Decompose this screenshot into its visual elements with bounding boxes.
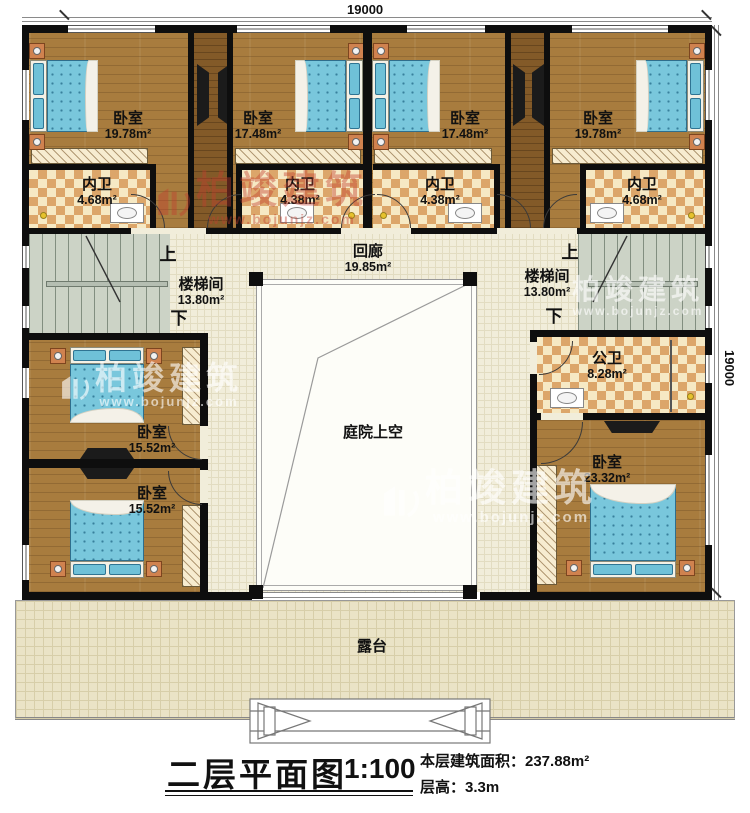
room-label-corridor: 回廊19.85m² bbox=[345, 243, 392, 275]
room-label-ensuite-2: 内卫4.38m² bbox=[280, 176, 320, 208]
room-label-stair-left: 楼梯间13.80m² bbox=[178, 276, 225, 308]
floor-height-note: 层高：3.3m bbox=[420, 776, 499, 797]
dimension-right-line-2 bbox=[718, 25, 719, 600]
drawing-title: 二层平面图 bbox=[167, 748, 347, 796]
room-label-ensuite-1: 内卫4.68m² bbox=[77, 176, 117, 208]
column-court-tr bbox=[463, 272, 477, 286]
column-court-bl bbox=[249, 585, 263, 599]
floor-plan: 卧室19.78m² 卧室17.48m² 卧室17.48m² 卧室19.78m² … bbox=[0, 0, 750, 813]
stair-right-up-label: 上 bbox=[562, 238, 579, 263]
window-left-5 bbox=[22, 545, 29, 580]
window-top-3 bbox=[407, 25, 485, 33]
room-label-bedroom-br: 卧室23.32m² bbox=[584, 454, 631, 486]
dimension-top-line-1 bbox=[22, 17, 712, 18]
wall-r1-d1 bbox=[188, 33, 194, 228]
title-underline-thin bbox=[165, 795, 413, 796]
floor-area-note: 本层建筑面积：237.88m² bbox=[420, 750, 589, 771]
wall-bath4-side bbox=[580, 164, 586, 228]
stair-left-up-label: 上 bbox=[160, 240, 177, 265]
wall-bottom-right bbox=[480, 592, 712, 600]
wall-d2-r4 bbox=[544, 33, 550, 228]
door-gap-entry1 bbox=[131, 228, 206, 234]
room-label-bedroom-tl: 卧室19.78m² bbox=[105, 110, 152, 142]
door-gap-br bbox=[541, 413, 583, 420]
column-court-br bbox=[463, 585, 477, 599]
window-top-2 bbox=[237, 25, 330, 33]
room-label-courtyard: 庭院上空 bbox=[343, 424, 403, 441]
dimension-top: 19000 bbox=[347, 2, 383, 17]
wall-bottom-left bbox=[22, 592, 252, 600]
room-label-ensuite-3: 内卫4.38m² bbox=[420, 176, 460, 208]
window-right-5 bbox=[705, 455, 712, 545]
door-gap-center bbox=[341, 228, 411, 234]
wall-bath1-top bbox=[29, 164, 150, 170]
wall-bath3-top bbox=[373, 164, 494, 170]
window-left-2 bbox=[22, 246, 29, 268]
door-gap-pb bbox=[530, 342, 537, 374]
window-left-4 bbox=[22, 368, 29, 398]
room-label-bedroom-tmr: 卧室17.48m² bbox=[442, 110, 489, 142]
window-top-4 bbox=[572, 25, 668, 33]
room-label-public-bath: 公卫8.28m² bbox=[587, 350, 627, 382]
window-right-3 bbox=[705, 306, 712, 328]
dimension-right-line-1 bbox=[714, 25, 715, 600]
window-right-2 bbox=[705, 246, 712, 268]
room-label-ensuite-4: 内卫4.68m² bbox=[622, 176, 662, 208]
wall-stairL-bottom bbox=[22, 333, 208, 340]
dimension-right: 19000 bbox=[722, 350, 737, 386]
room-label-bedroom-ml: 卧室15.52m² bbox=[129, 424, 176, 456]
door-gap-entry2 bbox=[497, 228, 577, 234]
room-label-terrace: 露台 bbox=[357, 638, 387, 655]
stair-left-down-label: 下 bbox=[171, 304, 188, 329]
window-top-1 bbox=[68, 25, 155, 33]
stair-right-down-label: 下 bbox=[546, 302, 563, 327]
wall-bath4-top bbox=[586, 164, 705, 170]
drawing-scale: 1:100 bbox=[344, 753, 416, 785]
room-label-bedroom-tml: 卧室17.48m² bbox=[235, 110, 282, 142]
window-right-1 bbox=[705, 70, 712, 120]
column-court-tl bbox=[249, 272, 263, 286]
dimension-top-line-2 bbox=[22, 21, 712, 22]
wall-pb-top bbox=[530, 330, 712, 337]
wall-bath2-top bbox=[242, 164, 363, 170]
window-left-1 bbox=[22, 70, 29, 120]
entry-porch bbox=[250, 699, 490, 743]
room-label-bedroom-tr: 卧室19.78m² bbox=[575, 110, 622, 142]
title-underline-thick bbox=[165, 790, 413, 792]
window-right-4 bbox=[705, 355, 712, 383]
room-label-stair-right: 楼梯间13.80m² bbox=[524, 268, 571, 300]
room-label-bedroom-bl: 卧室15.52m² bbox=[129, 485, 176, 517]
wall-ml-bl bbox=[22, 459, 208, 468]
window-left-3 bbox=[22, 306, 29, 328]
